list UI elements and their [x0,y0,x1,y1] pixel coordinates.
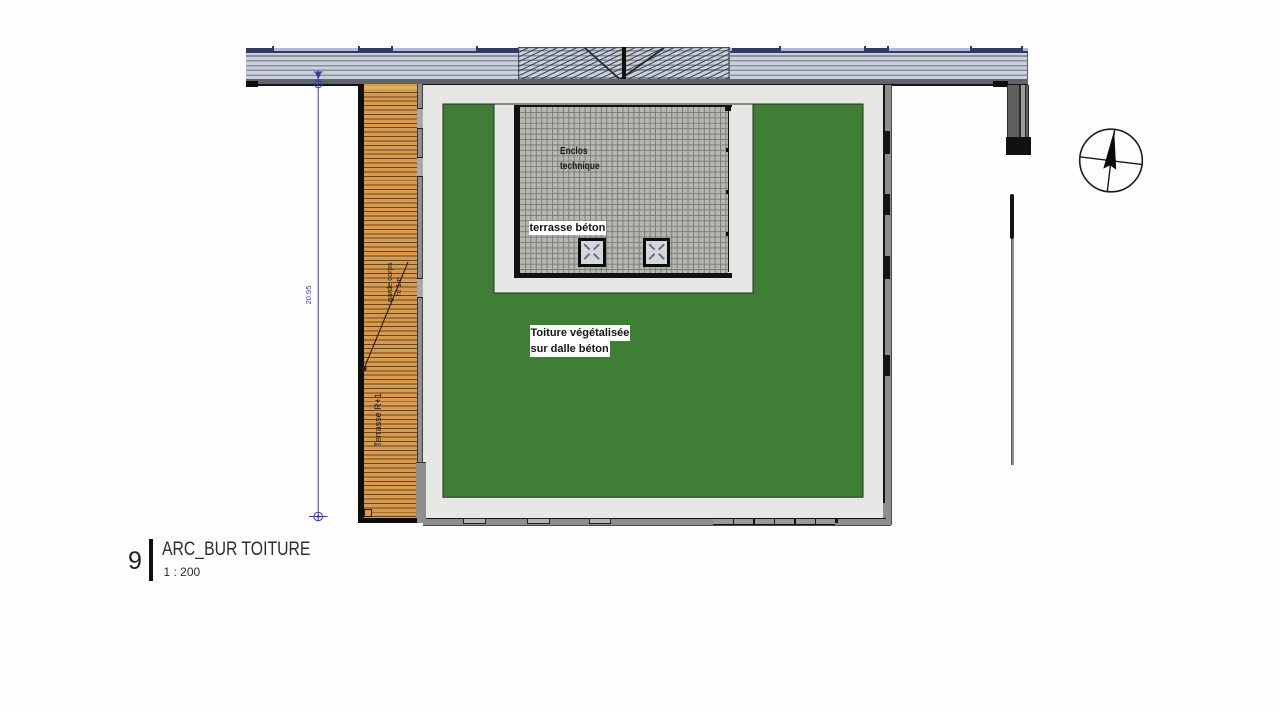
svg-text:20.95: 20.95 [304,286,313,305]
